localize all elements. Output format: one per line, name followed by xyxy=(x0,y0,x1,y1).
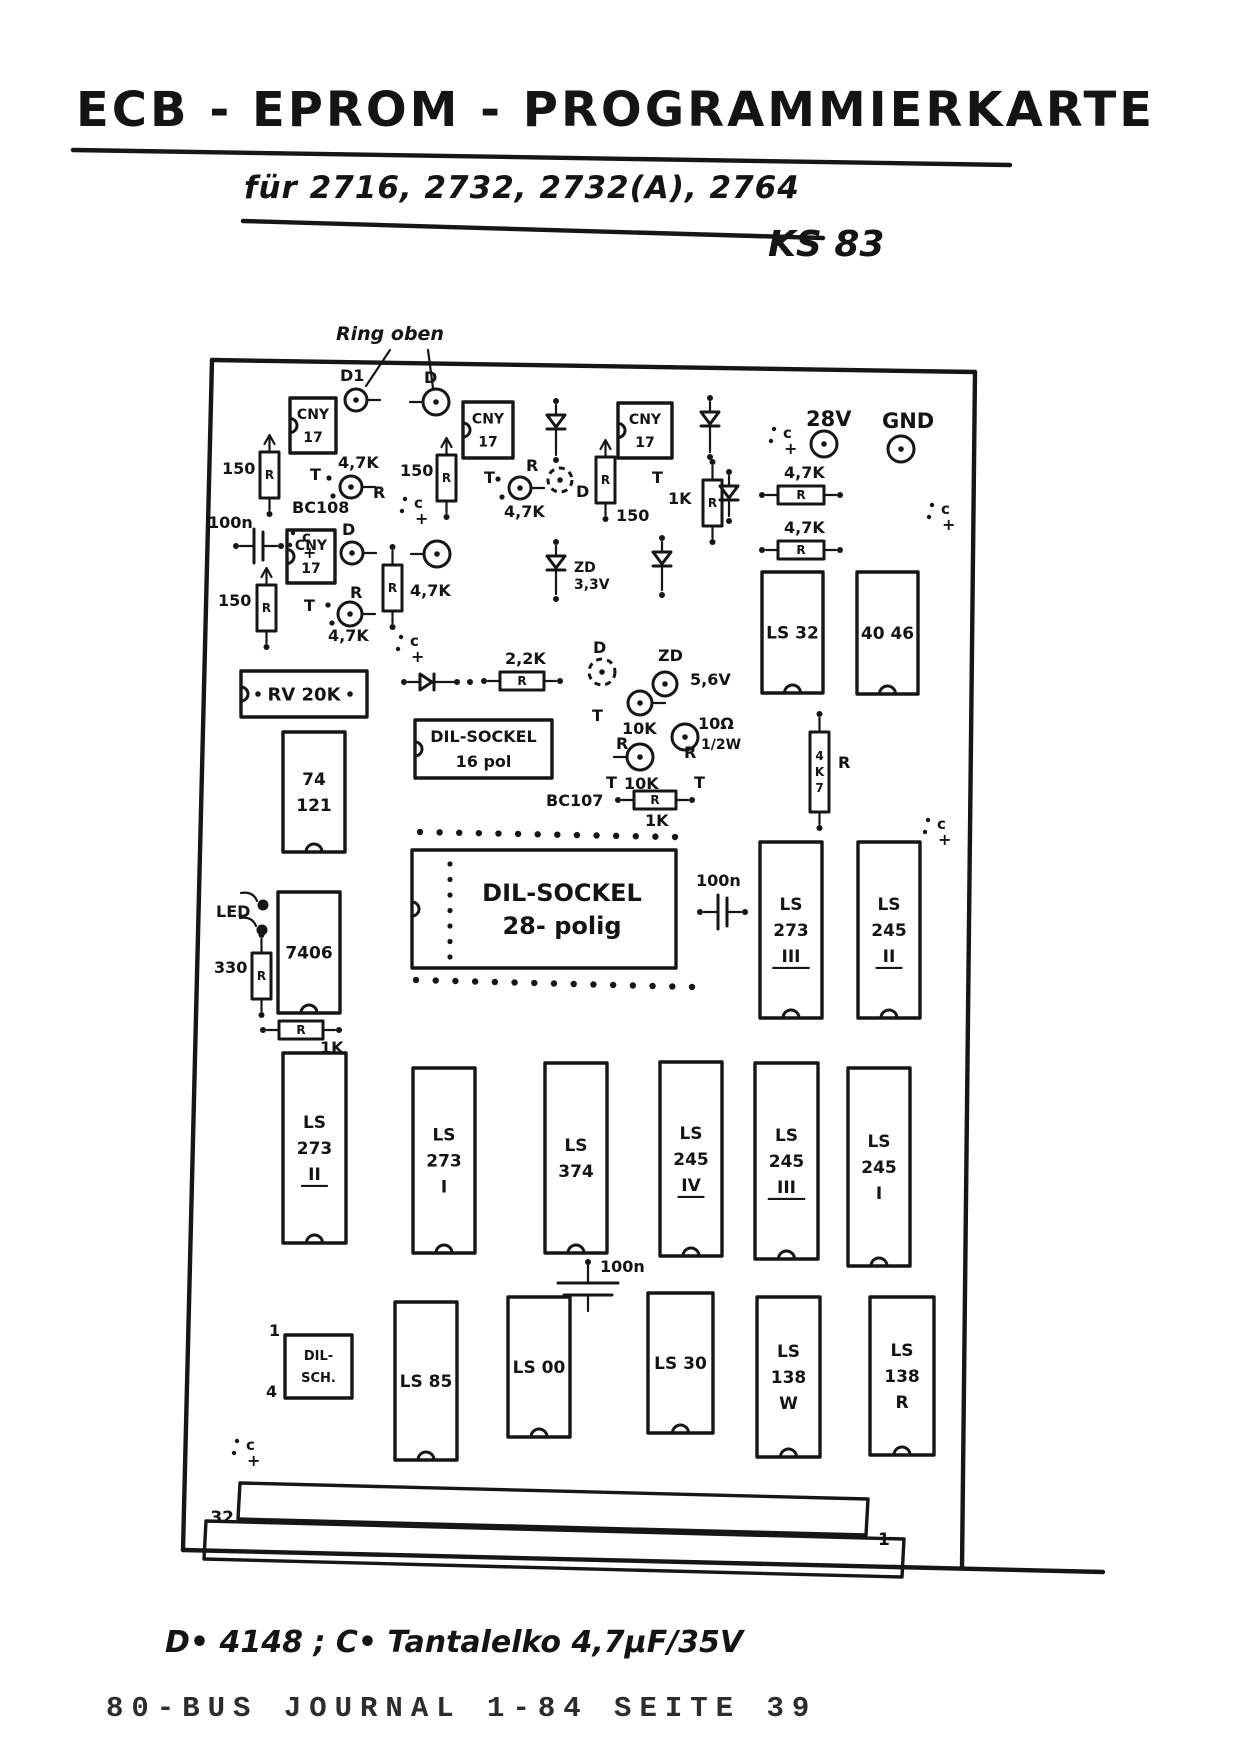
pin-row-bottom xyxy=(413,977,695,990)
ring-pointer-line xyxy=(366,350,390,386)
socket-dil28-label: 28- polig xyxy=(502,912,621,940)
ic-ls374-body xyxy=(545,1063,607,1253)
cap-mark-plus: + xyxy=(942,515,955,534)
journal-credit: 80-BUS JOURNAL 1-84 SEITE 39 xyxy=(106,1692,817,1725)
ic-ls138r-label: R xyxy=(895,1393,908,1413)
ic-ls245-iii: LS245III xyxy=(755,1063,818,1259)
pad-dot xyxy=(481,678,487,684)
resistor-value: 150 xyxy=(222,459,255,478)
pin-dot xyxy=(413,977,419,983)
switch-dil-sch-label: DIL- xyxy=(304,1349,333,1364)
led-pad xyxy=(258,900,269,911)
resistor-letter: R xyxy=(296,1023,305,1037)
pad-dot xyxy=(759,492,765,498)
led: LED xyxy=(216,893,269,936)
transistor-2 xyxy=(495,476,544,499)
resistor-value: 1K xyxy=(668,489,692,508)
pin-dot xyxy=(447,939,452,944)
pad-dot xyxy=(697,909,703,915)
led-pad xyxy=(257,925,268,936)
pin-dot xyxy=(630,982,636,988)
part-label: T xyxy=(304,596,315,615)
ic-ls00: LS 00 xyxy=(508,1297,570,1437)
pin-dot xyxy=(452,978,458,984)
center-dot xyxy=(353,397,359,403)
pin-dot xyxy=(593,832,599,838)
pin-dot xyxy=(649,983,655,989)
center-dot xyxy=(517,485,523,491)
pad-dot xyxy=(726,518,732,524)
center-dot xyxy=(347,611,353,617)
pin-dot xyxy=(590,981,596,987)
opto-cny17-1-label: 17 xyxy=(303,430,322,446)
center-dot xyxy=(557,477,563,483)
center-dot xyxy=(434,551,440,557)
pad-dot xyxy=(336,1027,342,1033)
res-4k7-h2: R4,7K xyxy=(759,518,843,559)
title-underline xyxy=(73,150,1010,165)
pad-dot xyxy=(401,679,407,685)
pad-dot xyxy=(255,691,261,697)
part-label: D xyxy=(576,482,589,501)
pin-dot xyxy=(531,980,537,986)
cap-polarity-mark: c+ xyxy=(927,500,956,534)
ic-ls273-i-label: LS xyxy=(432,1125,455,1145)
ic-ls00-label: LS 00 xyxy=(513,1358,566,1378)
pin-dot xyxy=(476,830,482,836)
cap-100n-mid: 100n xyxy=(696,871,748,929)
resistor-letter: R xyxy=(838,753,850,772)
part-label: T xyxy=(694,773,705,792)
resistor-letter: R xyxy=(442,471,451,485)
pin-dot xyxy=(511,979,517,985)
ic-ls273-i: LS273I xyxy=(413,1068,475,1253)
res-150-4: R150 xyxy=(218,568,276,650)
pad-dot xyxy=(817,711,823,717)
edge-connector-lower xyxy=(204,1521,904,1577)
ic-ls138w-label: LS xyxy=(777,1342,800,1362)
switch-dil-sch: DIL-SCH. xyxy=(285,1335,352,1398)
diode-d3-label: D xyxy=(342,520,355,539)
capacitor-value: 100n xyxy=(600,1257,645,1276)
pin-dot xyxy=(633,833,639,839)
ic-7406-label: 7406 xyxy=(285,943,332,963)
pin-dot xyxy=(551,980,557,986)
connector-pin-32: 32 xyxy=(210,1508,234,1528)
ic-ls138w-label: W xyxy=(779,1394,798,1414)
subtitle-underline xyxy=(243,221,823,238)
center-dot xyxy=(682,734,688,740)
ic-ls273-iii-label: LS xyxy=(779,895,802,915)
cap-mark-plus: + xyxy=(303,543,316,562)
ic-ls245-iii-label: III xyxy=(777,1178,796,1198)
pin-dot xyxy=(492,979,498,985)
pin-dot xyxy=(610,982,616,988)
center-dot xyxy=(662,681,668,687)
pad-dot xyxy=(585,1259,591,1265)
ic-ls273-iii-label: III xyxy=(782,947,801,967)
resistor-value: 1K xyxy=(645,811,669,830)
ic-ls85: LS 85 xyxy=(395,1302,457,1460)
pad-dot xyxy=(742,909,748,915)
ic-ls245-iv-label: IV xyxy=(681,1176,701,1196)
diode-dash-1 xyxy=(548,468,572,492)
pin-dot xyxy=(456,830,462,836)
pot-rv20k-label: RV 20K xyxy=(267,684,341,705)
ic-ls273-ii-label: 273 xyxy=(297,1139,333,1159)
anode-triangle xyxy=(547,556,565,568)
pin-dot xyxy=(472,978,478,984)
res-150-3: R150 xyxy=(596,440,649,525)
res-150-2: R150 xyxy=(400,438,456,520)
pin-hole xyxy=(495,476,500,481)
resistor-value: 4,7K xyxy=(784,518,825,537)
ic-ls32-label: LS 32 xyxy=(766,623,819,643)
pot-rv20k: RV 20K xyxy=(241,671,367,717)
pad-dot xyxy=(291,531,295,535)
ic-74121: 74121 xyxy=(283,732,345,852)
resistor-letter: 4 xyxy=(815,749,823,763)
components-layer: CNY17CNY17CNY17CNY17LS 3240 46RV 20K7412… xyxy=(208,366,955,1470)
pad-dot xyxy=(689,797,695,803)
ic-ls374: LS374 xyxy=(545,1063,607,1253)
part-label: 1/2W xyxy=(701,737,741,753)
part-label: 10K xyxy=(622,719,657,738)
ic-ls245-ii-label: LS xyxy=(877,895,900,915)
socket-dil28-label: DIL-SOCKEL xyxy=(482,879,642,907)
zener-5v6 xyxy=(653,672,677,696)
part-label: T xyxy=(484,468,495,487)
pad-dot xyxy=(659,535,665,541)
center-dot xyxy=(898,446,904,452)
center-dot xyxy=(637,700,643,706)
part-label: 4,7K xyxy=(328,626,369,645)
part-label: R xyxy=(684,743,696,762)
page-subtitle: für 2716, 2732, 2732(A), 2764 xyxy=(244,170,800,206)
resistor-value: 4,7K xyxy=(410,581,451,600)
opto-cny17-2-label: CNY xyxy=(472,411,505,427)
pad-dot xyxy=(396,647,400,651)
resistor-letter: R xyxy=(388,581,397,595)
pad-dot xyxy=(390,544,396,550)
opto-cny17-3-label: 17 xyxy=(635,435,654,451)
center-dot xyxy=(433,399,439,405)
opto-cny17-2-label: 17 xyxy=(478,434,497,450)
ic-ls273-ii: LS273II xyxy=(283,1053,346,1243)
pin-dot xyxy=(447,923,452,928)
resistor-letter: R xyxy=(262,601,271,615)
resistor-letter: R xyxy=(517,674,526,688)
cap-100n-left: 100n xyxy=(208,513,284,563)
footer: D• 4148 ; C• Tantalelko 4,7µF/35V 80-BUS… xyxy=(106,1625,817,1725)
ring-note-label: Ring oben xyxy=(336,323,444,345)
pin-dot xyxy=(447,954,452,959)
ic-ls273-ii-label: II xyxy=(308,1165,321,1185)
pad-dot xyxy=(467,679,473,685)
part-label: 4 xyxy=(266,1382,277,1401)
part-label: T xyxy=(310,465,321,484)
ic-ls245-i-label: 245 xyxy=(861,1158,897,1178)
pad-dot xyxy=(444,514,450,520)
res-1k: R1K xyxy=(668,459,722,545)
pad-dot xyxy=(553,457,559,463)
socket-dil16: DIL-SOCKEL16 pol xyxy=(415,720,552,778)
cap-mark-plus: + xyxy=(247,1451,260,1470)
board-edge-right xyxy=(962,372,975,1568)
pad-dot xyxy=(278,543,284,549)
zener-3v3 xyxy=(547,539,565,602)
ic-ls245-iii-label: LS xyxy=(775,1126,798,1146)
pad-dot xyxy=(390,624,396,630)
socket-dil28: DIL-SOCKEL28- polig xyxy=(412,850,676,968)
resistor-value: 2,2K xyxy=(505,649,546,668)
ic-74121-body xyxy=(283,732,345,852)
terminal-28v xyxy=(811,431,837,457)
pad-dot xyxy=(710,539,716,545)
ic-4046-label: 40 46 xyxy=(861,624,914,644)
ic-ls245-iii-label: 245 xyxy=(769,1152,805,1172)
center-dot xyxy=(821,441,827,447)
board-edge-top xyxy=(212,360,975,372)
pad-dot xyxy=(553,398,559,404)
pad-dot xyxy=(837,492,843,498)
pin-dot xyxy=(689,984,695,990)
pad-dot xyxy=(769,439,773,443)
cap-polarity-mark: c+ xyxy=(923,815,952,849)
pin-dot xyxy=(613,833,619,839)
pad-dot xyxy=(454,679,460,685)
anode-triangle xyxy=(420,674,432,690)
cap-mark-plus: + xyxy=(784,439,797,458)
header: ECB - EPROM - PROGRAMMIERKARTE für 2716,… xyxy=(73,82,1155,265)
pad-dot xyxy=(399,635,403,639)
part-label: 28V xyxy=(806,407,852,431)
part-label: BC107 xyxy=(546,791,603,810)
ic-ls245-i: LS245I xyxy=(848,1068,910,1266)
part-label: R xyxy=(350,583,362,602)
pad-dot xyxy=(615,797,621,803)
part-label: T xyxy=(652,468,663,487)
diode-d2: D xyxy=(410,368,449,415)
ic-ls273-i-label: I xyxy=(441,1177,447,1197)
ic-ls138r-label: 138 xyxy=(884,1367,920,1387)
part-label: T xyxy=(606,773,617,792)
part-label: 1 xyxy=(269,1321,280,1340)
pin-dot xyxy=(447,861,452,866)
pad-dot xyxy=(264,644,270,650)
cap-mark-plus: + xyxy=(938,830,951,849)
cap-polarity-mark: c+ xyxy=(288,528,317,562)
switch-dil-sch-body xyxy=(285,1335,352,1398)
board-diagram: ECB - EPROM - PROGRAMMIERKARTE für 2716,… xyxy=(0,0,1240,1754)
parts-footnote: D• 4148 ; C• Tantalelko 4,7µF/35V xyxy=(165,1625,746,1660)
resistor-value: 330 xyxy=(214,958,247,977)
ic-ls245-ii-label: 245 xyxy=(871,921,907,941)
part-label: ZD xyxy=(574,560,596,576)
diode-v1 xyxy=(547,398,565,463)
part-label: 3,3V xyxy=(574,577,610,593)
pad-dot xyxy=(927,515,931,519)
ic-4046: 40 46 xyxy=(857,572,918,694)
diode-dash-2 xyxy=(589,659,615,685)
cap-polarity-mark: c+ xyxy=(396,632,425,666)
pad-dot xyxy=(403,497,407,501)
part-label: R xyxy=(526,456,538,475)
part-label: R xyxy=(373,483,385,502)
part-label: BC108 xyxy=(292,498,349,517)
pin-dot xyxy=(447,908,452,913)
pad-dot xyxy=(553,539,559,545)
pad-dot xyxy=(260,1027,266,1033)
opto-cny17-3: CNY17 xyxy=(618,403,672,458)
pin-dot xyxy=(447,877,452,882)
pad-dot xyxy=(817,825,823,831)
res-1k-bc107: R1K xyxy=(615,791,695,830)
ic-ls138w-label: 138 xyxy=(771,1368,807,1388)
pad-dot xyxy=(233,543,239,549)
ic-ls30-label: LS 30 xyxy=(654,1354,707,1374)
connector-pin-1: 1 xyxy=(878,1530,890,1550)
ic-ls273-iii-label: 273 xyxy=(773,921,809,941)
cap-polarity-mark: c+ xyxy=(400,494,429,528)
opto-cny17-2: CNY17 xyxy=(463,402,513,458)
pad-dot xyxy=(232,1451,236,1455)
diode-h1 xyxy=(401,674,456,690)
ic-ls273-iii: LS273III xyxy=(760,842,822,1018)
led-lead xyxy=(241,893,257,901)
opto-cny17-4-label: 17 xyxy=(301,561,320,577)
ic-ls374-label: 374 xyxy=(558,1162,594,1182)
resistor-value: 150 xyxy=(616,506,649,525)
pad-dot xyxy=(759,547,765,553)
ic-74121-label: 74 xyxy=(302,770,326,790)
part-label: 10Ω xyxy=(698,714,734,733)
pin-dot xyxy=(495,830,501,836)
opto-cny17-3-label: CNY xyxy=(629,412,662,428)
pad-dot xyxy=(930,503,934,507)
ic-74121-label: 121 xyxy=(296,796,332,816)
cap-polarity-mark: c+ xyxy=(232,1436,261,1470)
pin-dot xyxy=(436,829,442,835)
resistor-letter: K xyxy=(815,765,825,779)
capacitor-value: 100n xyxy=(696,871,741,890)
pin-dot xyxy=(447,892,452,897)
part-label: 10K xyxy=(624,774,659,793)
ic-ls245-ii-label: II xyxy=(883,947,896,967)
resistor-letter: R xyxy=(650,793,659,807)
resistor-value: 150 xyxy=(218,591,251,610)
pad-dot xyxy=(259,1012,265,1018)
ic-ls138w: LS138W xyxy=(757,1297,820,1457)
ic-ls273-ii-label: LS xyxy=(303,1113,326,1133)
pin-row-top xyxy=(417,829,678,840)
ic-ls85-label: LS 85 xyxy=(400,1372,453,1392)
resistor-letter: R xyxy=(796,488,805,502)
ic-ls245-ii: LS245II xyxy=(858,842,920,1018)
cap-mark-plus: + xyxy=(411,647,424,666)
pin-dot xyxy=(571,981,577,987)
pad-dot xyxy=(923,830,927,834)
opto-cny17-1: CNY17 xyxy=(290,398,336,453)
cap-mark-plus: + xyxy=(415,509,428,528)
pad-dot xyxy=(659,592,665,598)
pin-hole xyxy=(325,602,330,607)
pad-dot xyxy=(603,516,609,522)
pad-dot xyxy=(926,818,930,822)
center-dot xyxy=(349,550,355,556)
pad-dot xyxy=(347,691,353,697)
diode-d1-label: D1 xyxy=(340,366,364,385)
ic-ls245-iv-label: 245 xyxy=(673,1150,709,1170)
res-2k2: R2,2K xyxy=(481,649,563,690)
revision-code: KS 83 xyxy=(768,224,884,265)
pin-dot xyxy=(652,833,658,839)
center-dot xyxy=(348,484,354,490)
terminal-gnd xyxy=(888,436,914,462)
pin-dot xyxy=(515,831,521,837)
pad-dot xyxy=(707,454,713,460)
pad-dot xyxy=(288,543,292,547)
transistor-3 xyxy=(325,602,375,626)
pin-hole xyxy=(329,620,334,625)
ic-ls245-iv-label: LS xyxy=(679,1124,702,1144)
cap-polarity-mark: c+ xyxy=(769,424,798,458)
anode-triangle xyxy=(653,552,671,564)
resistor-value: 150 xyxy=(400,461,433,480)
anode-triangle xyxy=(547,415,565,427)
pin-dot xyxy=(554,831,560,837)
edge-connector-upper xyxy=(238,1483,868,1535)
resistor-letter: R xyxy=(708,496,717,510)
part-label: 4,7K xyxy=(504,502,545,521)
capacitor-value: 100n xyxy=(208,513,253,532)
resistor-letter: R xyxy=(601,473,610,487)
res-150-1: R150 xyxy=(222,435,279,517)
pin-dot xyxy=(672,834,678,840)
diode-d4 xyxy=(411,541,450,567)
resistor-value: 1K xyxy=(320,1038,344,1057)
ic-ls32: LS 32 xyxy=(762,572,823,693)
center-dot xyxy=(599,669,605,675)
part-label: T xyxy=(592,706,603,725)
opto-cny17-1-label: CNY xyxy=(297,407,330,423)
resistor-letter: R xyxy=(265,468,274,482)
res-4k7-tall: 4K7R xyxy=(810,711,850,831)
anode-triangle xyxy=(701,412,719,424)
pin-dot xyxy=(534,831,540,837)
diode-v2 xyxy=(701,395,719,460)
socket-dil16-label: 16 pol xyxy=(456,752,512,771)
pad-dot xyxy=(707,395,713,401)
pad-dot xyxy=(553,596,559,602)
diode-v4 xyxy=(653,535,671,598)
pin-hole xyxy=(499,494,504,499)
resistor-letter: 7 xyxy=(815,781,823,795)
part-label: D xyxy=(593,638,606,657)
pad-dot xyxy=(772,427,776,431)
res-4k7-h1: R4,7K xyxy=(759,463,843,504)
pad-dot xyxy=(267,511,273,517)
res-330: R330 xyxy=(214,932,271,1018)
pin-dot xyxy=(433,977,439,983)
ic-7406: 7406 xyxy=(278,892,340,1013)
part-label: 5,6V xyxy=(690,670,731,689)
pad-dot xyxy=(400,509,404,513)
ic-ls245-iv: LS245IV xyxy=(660,1062,722,1256)
pin-dot xyxy=(574,832,580,838)
ic-ls30: LS 30 xyxy=(648,1293,713,1433)
diode-d2-label: D xyxy=(424,368,437,387)
